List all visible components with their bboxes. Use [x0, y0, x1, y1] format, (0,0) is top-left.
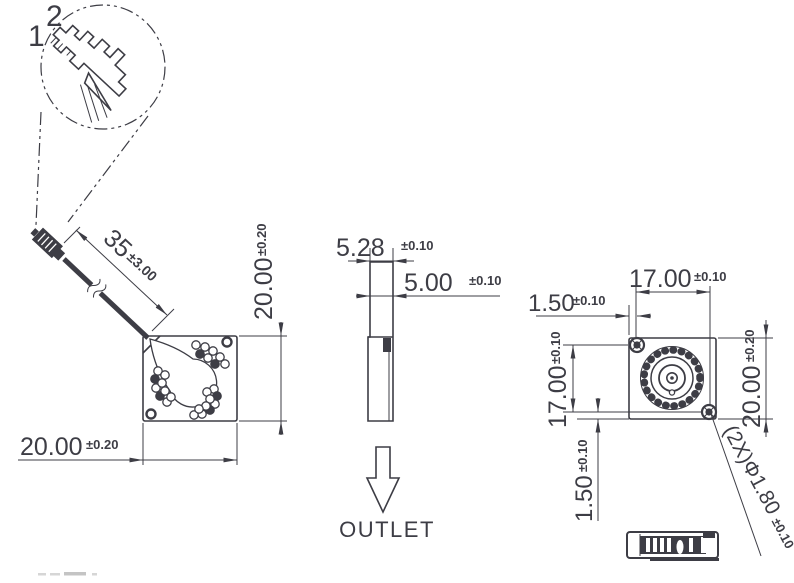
dim-tolerance: ±0.10: [575, 440, 590, 472]
dim-value: 1.50: [571, 475, 598, 522]
cropped-text-fragment: [38, 572, 97, 576]
dim-value: 17.00: [629, 265, 692, 293]
dim-tolerance: ±0.20: [86, 437, 118, 452]
dim-value: 1.50: [528, 290, 575, 317]
dim-value: (2X)Φ1.80: [719, 422, 785, 519]
top-view: 35 ±3.00: [18, 224, 287, 465]
detail-leader-line-left: [36, 112, 41, 225]
dim-value: 20.00: [738, 365, 766, 428]
dim-tolerance: ±0.10: [469, 273, 501, 288]
outlet-label: OUTLET: [339, 517, 435, 542]
cable-connector: [28, 224, 67, 262]
outlet-direction-arrow-icon: [367, 447, 399, 512]
dim-front-mounting-holes: (2X)Φ1.80 ±0.10: [711, 414, 794, 556]
dim-tolerance: ±0.10: [694, 269, 726, 284]
front-view: 17.00 ±0.10 1.50 ±0.10 17.00 ±0.10 20.00: [528, 265, 794, 556]
dim-side-body-thickness: 5.00 ±0.10: [356, 269, 501, 297]
wire-lines: [67, 77, 118, 128]
dim-tolerance: ±0.10: [769, 515, 794, 551]
dim-tolerance: ±0.10: [548, 332, 563, 364]
bottom-view: [627, 532, 719, 560]
engineering-drawing: 1 2 35 ±3.00: [0, 0, 794, 583]
dim-value: 17.00: [544, 365, 572, 428]
dim-front-hole-offset-left: 1.50 ±0.10: [528, 290, 651, 335]
dim-front-hole-offset-bottom: 1.50 ±0.10: [571, 398, 598, 522]
latch-detail: [383, 338, 391, 352]
side-view: 5.28 ±0.10 5.00 ±0.10 OUTLET: [336, 234, 501, 542]
screw-hole-bottom-left: [147, 410, 156, 419]
dim-front-hole-pitch-left: 17.00 ±0.10: [544, 332, 573, 428]
detail-leader-line-right: [68, 116, 148, 222]
dim-tolerance: ±0.10: [573, 293, 605, 308]
dim-value: 5.28: [336, 234, 385, 262]
pin-callout-1: 1: [28, 20, 45, 53]
dim-front-hole-pitch-top: 17.00 ±0.10: [629, 265, 726, 293]
dim-value: 5.00: [404, 269, 453, 297]
dim-side-top-thickness: 5.28 ±0.10: [336, 234, 433, 266]
dim-top-view-width: 20.00 ±0.20: [18, 423, 237, 465]
screw-hole-top-right: [223, 338, 232, 347]
mounting-hole-top-left: [630, 338, 644, 352]
dim-tolerance: ±0.20: [254, 224, 269, 256]
dim-tolerance: ±3.00: [124, 249, 161, 285]
pin-callout-2: 2: [46, 0, 63, 33]
mounting-hole-bottom-right: [702, 405, 716, 419]
dim-value: 20.00: [20, 433, 83, 461]
blower-fan-dimension-drawing: 1 2 35 ±3.00: [0, 0, 794, 583]
dim-value: 20.00: [250, 257, 278, 320]
dim-tolerance: ±0.10: [401, 238, 433, 253]
impeller: [641, 347, 704, 410]
detail-balloon-view: 1 2: [27, 0, 165, 225]
dim-top-view-height: 20.00 ±0.20: [239, 224, 287, 435]
dim-tolerance: ±0.20: [742, 330, 757, 362]
